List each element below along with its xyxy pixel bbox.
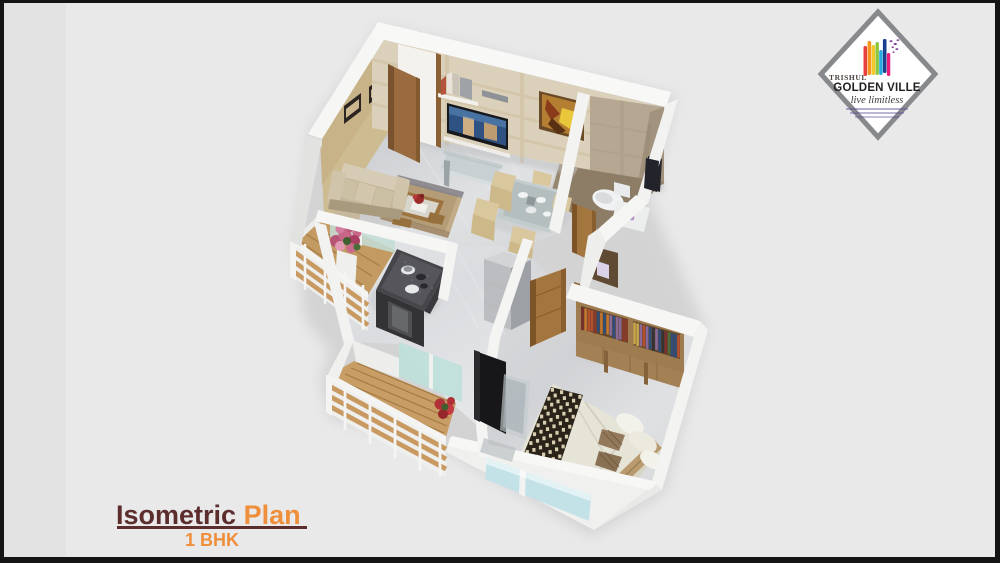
svg-text:GOLDEN VILLE: GOLDEN VILLE: [833, 82, 921, 94]
svg-text:live limitless: live limitless: [851, 95, 904, 106]
svg-text:TRISHUL: TRISHUL: [829, 73, 867, 82]
